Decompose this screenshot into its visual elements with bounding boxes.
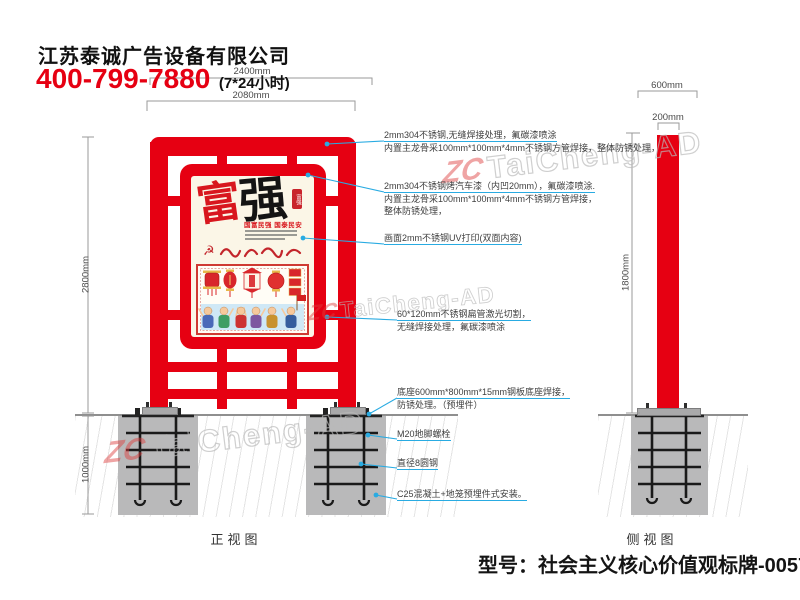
annotation-flat-tube: 60*120mm不锈钢扁管激光切割， 无缝焊接处理，氟碳漆喷涂 <box>397 308 531 333</box>
annotation-concrete: C25混凝土+地笼预埋件式安装。 <box>397 488 527 501</box>
contact-row: 400-799-7880 (7*24小时) <box>36 63 290 95</box>
vertical-banner-icon <box>289 269 301 296</box>
base-plate-side <box>637 408 701 416</box>
frame-rung <box>165 196 181 206</box>
anchor-bolt <box>684 403 687 408</box>
calligraphy-slogan-row: ☭ <box>201 242 301 260</box>
technical-drawing-page: 江苏泰诚广告设备有限公司 400-799-7880 (7*24小时) <box>0 0 800 600</box>
dim-front-height: 2800mm <box>81 240 92 310</box>
poster-artwork: 富 强 富强 国富民强 国泰民安 ☭ <box>191 176 314 337</box>
party-emblem-icon: ☭ <box>203 244 215 257</box>
model-number: 型号：社会主义核心价值观标牌-0057 <box>478 549 800 578</box>
brush-script-icon <box>219 243 303 261</box>
frame-rung <box>165 310 181 320</box>
frame-post-right <box>338 142 356 413</box>
annotation-round-steel: 直径8圆钢 <box>397 457 438 470</box>
foundation-block-side <box>631 416 708 515</box>
dim-side-base-width: 600mm <box>639 80 695 91</box>
front-view-label: 正视图 <box>186 529 286 548</box>
phone-number: 400-799-7880 <box>36 63 210 94</box>
anchor-bolt <box>334 402 337 407</box>
frame-post-left <box>150 142 168 413</box>
dim-side-pole-height: 1800mm <box>621 238 632 308</box>
red-seal-stamp: 富强 <box>292 189 302 209</box>
anchor-bolt <box>646 403 649 408</box>
dim-foundation-depth: 1000mm <box>81 430 92 500</box>
annotation-print-face: 画面2mm不锈钢UV打印(双面内容) <box>384 232 522 245</box>
annotation-anchor-bolt: M20地脚螺栓 <box>397 428 451 441</box>
foundation-block-left <box>118 416 198 515</box>
annotation-base-plate: 底座600mm*800mm*15mm钢板底座焊接， 防锈处理。（预埋件） <box>397 386 570 411</box>
foundation-block-right <box>306 416 386 515</box>
side-view-label: 侧视图 <box>602 529 702 548</box>
annotation-frame-material: 2mm304不锈钢,无缝焊接处理，氟碳漆喷涂 内置主龙骨采100mm*100mm… <box>384 129 660 154</box>
base-plate-right <box>330 407 366 415</box>
base-plate-left <box>142 407 178 415</box>
rebar-cage-icon <box>118 408 198 520</box>
frame-strut-bottom-2 <box>287 349 297 409</box>
rebar-cage-icon <box>306 408 386 520</box>
anchor-bolt <box>169 402 172 407</box>
service-hours: (7*24小时) <box>219 75 290 92</box>
calligraphy-char-fu: 富 <box>194 179 244 229</box>
rebar-cage-icon <box>631 408 708 518</box>
fine-print-line <box>245 238 285 240</box>
frame-rung <box>325 196 341 206</box>
anchor-bolt <box>357 402 360 407</box>
frame-cross-bar <box>166 389 340 399</box>
frame-top-beam <box>150 137 356 156</box>
anchor-bolt <box>146 402 149 407</box>
frame-strut-bottom-1 <box>217 349 227 409</box>
lantern-scene-panel <box>196 264 309 335</box>
side-view-pole <box>657 135 679 411</box>
fine-print-line <box>245 230 297 232</box>
frame-cross-bar <box>166 362 340 372</box>
poster-subtitle: 国富民强 国泰民安 <box>244 219 302 229</box>
annotation-box-material: 2mm304不锈钢烤汽车漆（内凹20mm），氟碳漆喷涂. 内置主龙骨采100mm… <box>384 180 597 217</box>
frame-rung <box>325 310 341 320</box>
dim-side-pole-width: 200mm <box>646 112 690 123</box>
fine-print-line <box>245 234 297 236</box>
